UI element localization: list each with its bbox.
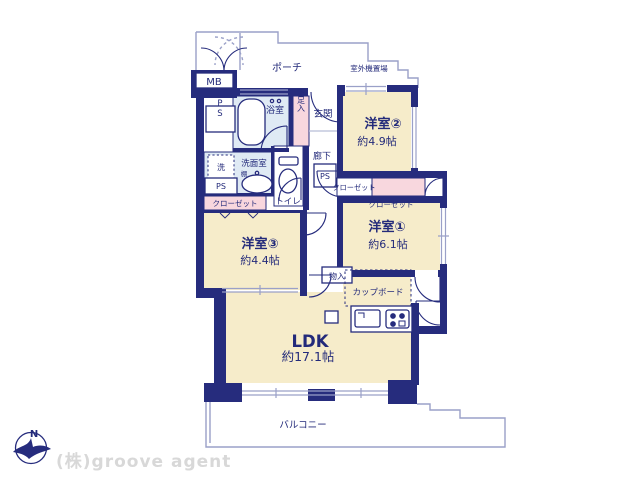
label-closet1: クローゼット <box>369 199 414 209</box>
western3-door <box>304 213 326 235</box>
band-right-door <box>425 178 443 196</box>
wall-mid-upper <box>337 92 343 171</box>
wall-corner-bl <box>204 383 242 402</box>
label-outdoor-unit: 室外機置場 <box>350 63 388 73</box>
floorplan-page: ポーチ 室外機置場 MB PS 浴室 下足入 玄関 廊下 洗 洗面室 棚 PS … <box>0 0 640 480</box>
mb-door-left <box>201 48 224 71</box>
floorplan-drawing: ポーチ 室外機置場 MB PS 浴室 下足入 玄関 廊下 洗 洗面室 棚 PS … <box>0 0 640 480</box>
label-washroom: 洗面室 <box>241 158 267 169</box>
label-mb: MB <box>206 77 222 88</box>
wall-left <box>196 96 204 296</box>
label-western2-area: 約4.9帖 <box>357 134 397 148</box>
mb-door-right <box>224 48 247 71</box>
label-western1: 洋室① <box>368 219 405 235</box>
stove-burner2 <box>400 314 404 318</box>
label-washer: 洗 <box>217 162 225 172</box>
label-storage: 物入 <box>329 271 345 281</box>
wall-ldk-left <box>214 292 226 385</box>
closet1-box <box>372 178 425 196</box>
label-ps3: PS <box>320 172 330 181</box>
balcony-outline <box>206 402 505 447</box>
label-entrance: 玄関 <box>313 108 332 120</box>
wall-w1-right-a <box>440 196 447 208</box>
wall-band-right <box>443 171 447 196</box>
wall-closetband-top <box>337 171 447 178</box>
label-bathroom: 浴室 <box>266 104 284 116</box>
wall-w2-right-a <box>411 85 418 107</box>
compass-icon: N <box>13 429 51 464</box>
wall-w2-right-b <box>411 168 418 178</box>
label-ldk-area: 約17.1帖 <box>282 349 335 364</box>
western1-floor <box>343 203 440 270</box>
label-porch: ポーチ <box>272 62 302 74</box>
bath-faucet-icon2 <box>277 99 280 102</box>
label-balcony: バルコニー <box>279 420 326 431</box>
wall-mid-lower <box>337 203 343 270</box>
wall-w1-right-b <box>440 264 447 277</box>
western2-right-window <box>413 107 417 168</box>
label-toilet: トイレ <box>275 197 301 207</box>
company-logo-text: (株)groove agent <box>56 451 231 472</box>
label-ps2: PS <box>216 182 226 191</box>
toilet-tank-icon <box>279 157 298 165</box>
wall-western3-right <box>300 210 307 296</box>
kitchen-end-panel <box>325 311 338 323</box>
wall-toilet-left <box>271 146 274 196</box>
label-western3-area: 約4.4帖 <box>240 253 280 267</box>
bath-faucet-icon <box>270 99 273 102</box>
wall-passage-right <box>440 277 447 334</box>
porch-gate-door-arc2 <box>215 37 243 65</box>
label-western1-area: 約6.1帖 <box>368 237 408 251</box>
wall-bath-right <box>289 92 293 146</box>
washbasin-tap-icon <box>255 171 258 174</box>
stove-icon <box>386 310 409 328</box>
label-closet3: クローゼット <box>213 198 258 208</box>
label-closet2: クローゼット <box>332 183 375 192</box>
label-hallway: 廊下 <box>313 150 331 162</box>
wall-w2-top-a <box>337 85 345 92</box>
label-ps1: PS <box>215 99 225 119</box>
label-western2: 洋室② <box>364 116 401 132</box>
label-shelf: 棚 <box>241 169 248 178</box>
wall-toilet-right <box>303 146 309 210</box>
stove-burner1 <box>391 314 395 318</box>
label-shoe-cabinet: 下足入 <box>297 88 306 112</box>
stove-grill <box>399 321 405 326</box>
bathtub-icon <box>238 99 265 145</box>
wall-western3-top <box>204 210 300 213</box>
label-cupboard: カップボード <box>352 288 403 298</box>
stove-burner3 <box>391 322 395 326</box>
label-western3: 洋室③ <box>241 236 278 252</box>
